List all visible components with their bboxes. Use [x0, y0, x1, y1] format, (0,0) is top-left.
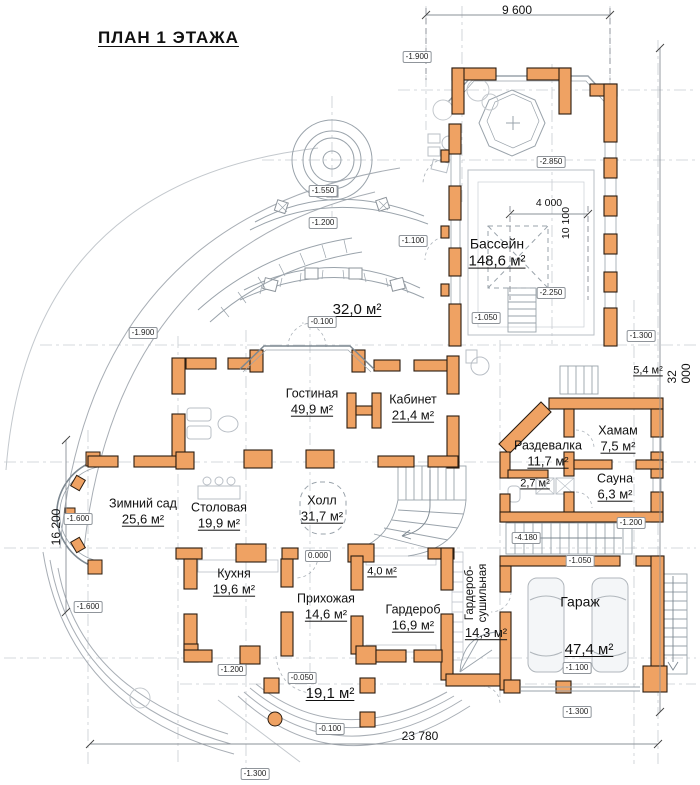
level-mark: -1.200 — [218, 664, 247, 676]
dimension-left: 16 200 — [49, 509, 63, 546]
plan-linework — [0, 0, 700, 785]
room-label-changing: Раздевалка 11,7 м² — [514, 439, 582, 470]
car — [528, 578, 564, 672]
room-label-cabinet: Кабинет 21,4 м² — [389, 393, 437, 424]
room-label-hall: Холл 31,7 м² — [301, 494, 343, 525]
room-label-terrace-lower: 19,1 м² — [306, 685, 355, 703]
room-label-drying-area: 14,3 м² — [465, 625, 507, 641]
room-label-winter-garden: Зимний сад 25,6 м² — [109, 497, 177, 528]
level-mark: -0.100 — [308, 316, 337, 328]
level-mark: -1.600 — [74, 601, 103, 613]
dimension-pool-length: 10 100 — [560, 207, 572, 239]
room-label-wc: 2,7 м² — [520, 477, 550, 490]
room-label-garage-name: Гараж — [560, 594, 600, 611]
level-mark: -1.050 — [472, 312, 501, 324]
room-label-dining: Столовая 19,9 м² — [191, 501, 247, 532]
level-mark: -1.050 — [566, 555, 595, 567]
level-mark: -1.900 — [129, 327, 158, 339]
floor-plan-canvas: ПЛАН 1 ЭТАЖА 9 600 32 000 16 200 23 780 … — [0, 0, 700, 785]
garage-door-lines — [521, 687, 640, 691]
level-mark: -2.250 — [537, 287, 566, 299]
level-mark: -1.550 — [309, 185, 338, 197]
room-label-pool: Бассейн 148,6 м² — [468, 236, 525, 271]
level-mark: -0.050 — [288, 672, 317, 684]
room-label-40: 4,0 м² — [367, 565, 397, 578]
room-label-garage-area: 47,4 м² — [565, 641, 614, 659]
level-mark: -2.850 — [537, 156, 566, 168]
gazebo-octagon — [479, 90, 545, 156]
room-label-sauna: Сауна 6,3 м² — [597, 472, 633, 503]
level-mark: -0.100 — [316, 723, 345, 735]
level-mark: -1.200 — [309, 217, 338, 229]
room-label-living: Гостиная 49,9 м² — [286, 387, 338, 418]
page-title: ПЛАН 1 ЭТАЖА — [98, 28, 239, 48]
level-mark: -1.300 — [563, 706, 592, 718]
room-label-drying-name: Гардероб- сушильная — [464, 564, 490, 623]
room-label-kitchen: Кухня 19,6 м² — [213, 567, 255, 598]
level-mark: -1.600 — [64, 513, 93, 525]
room-label-entry: Прихожая 14,6 м² — [297, 592, 355, 623]
room-label-hamam: Хамам 7,5 м² — [598, 424, 637, 455]
level-mark: -1.300 — [627, 330, 656, 342]
level-mark: 0.000 — [305, 550, 331, 562]
level-mark: -1.100 — [399, 235, 428, 247]
dimension-bottom: 23 780 — [400, 729, 441, 743]
level-mark: -1.900 — [403, 51, 432, 63]
walls — [88, 68, 667, 727]
dimension-right: 32 000 — [665, 363, 693, 384]
room-label-wardrobe: Гардероб 16,9 м² — [386, 603, 441, 634]
room-label-54: 5,4 м² — [633, 364, 663, 377]
dimension-top: 9 600 — [500, 3, 534, 17]
level-mark: -1.300 — [241, 768, 270, 780]
room-label-terrace-upper: 32,0 м² — [333, 301, 382, 319]
level-mark: -1.200 — [617, 517, 646, 529]
level-mark: -4.180 — [512, 532, 541, 544]
terrace-railings — [198, 186, 428, 322]
level-mark: -1.100 — [563, 662, 592, 674]
